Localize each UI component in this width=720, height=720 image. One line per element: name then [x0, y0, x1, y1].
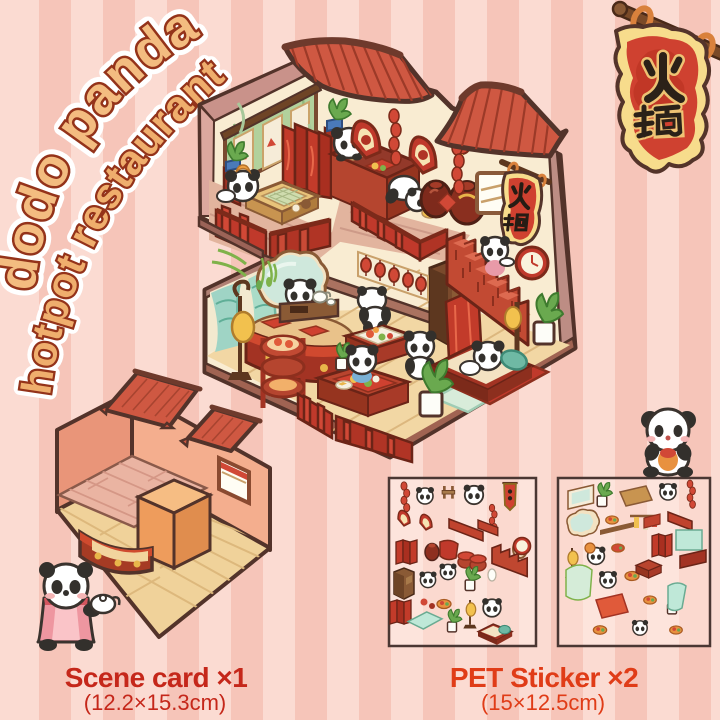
svg-text:PET Sticker ×2: PET Sticker ×2 [450, 662, 638, 693]
svg-text:(12.2×15.3cm): (12.2×15.3cm) [84, 690, 226, 715]
svg-text:dodo panda: dodo panda [0, 0, 209, 294]
svg-text:(15×12.5cm): (15×12.5cm) [481, 690, 605, 715]
svg-text:Scene card ×1: Scene card ×1 [65, 662, 248, 693]
